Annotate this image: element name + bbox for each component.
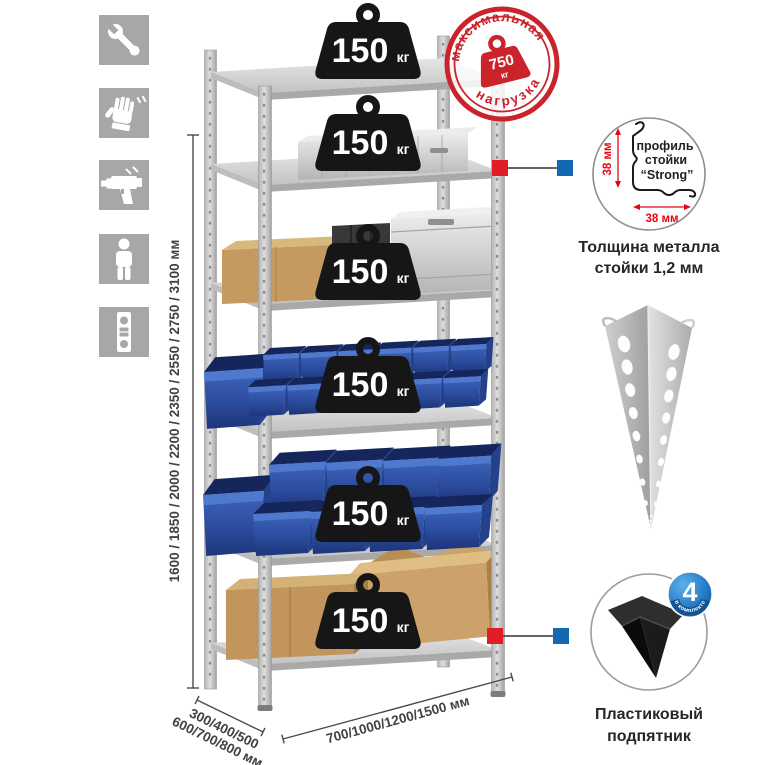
load-value: 150	[332, 32, 389, 70]
load-value: 150	[332, 495, 389, 533]
width-dimension-label: 700/1000/1200/1500 мм	[325, 693, 471, 746]
load-value: 150	[332, 124, 389, 162]
infographic-canvas: 150 кг 150 кг 150 кг 150 кг 150 кг 150 к…	[0, 0, 765, 765]
blue-marker	[557, 160, 573, 176]
load-badge-1: 150 кг	[315, 7, 420, 80]
level-icon	[117, 312, 131, 352]
corner-post-image	[603, 305, 694, 529]
blue-marker	[553, 628, 569, 644]
load-unit: кг	[397, 141, 410, 157]
profile-caption-1: Толщина металла	[578, 239, 719, 256]
shelving-infographic: 150 кг 150 кг 150 кг 150 кг 150 кг 150 к…	[0, 0, 765, 765]
load-value: 150	[332, 253, 389, 291]
profile-callout-connector	[492, 160, 573, 176]
plastic-foot-detail: 4 в комплекте Пластиковый подпятник	[591, 572, 713, 746]
foot-callout-connector	[487, 628, 569, 644]
foot-caption-1: Пластиковый	[595, 706, 703, 723]
depth-dimension: 300/400/500 600/700/800 мм	[170, 696, 272, 765]
profile-dim-vertical: 38 мм	[602, 142, 614, 175]
sidebar-item-gloves	[99, 88, 149, 138]
load-badge-2: 150 кг	[315, 99, 420, 172]
badge-count: 4	[682, 577, 697, 607]
post-profile-detail: профиль стойки “Strong” 38 мм 38 мм Толщ…	[578, 118, 719, 277]
load-value: 150	[332, 366, 389, 404]
included-count-badge: 4 в комплекте	[668, 572, 713, 617]
height-dimension-label: 1600 / 1850 / 2000 / 2200 / 2350 / 2550 …	[167, 240, 182, 583]
max-load-stamp: максимальная нагрузка 750 кг	[435, 0, 568, 131]
load-unit: кг	[397, 49, 410, 65]
load-unit: кг	[397, 619, 410, 635]
sidebar-item-tools	[99, 15, 149, 65]
profile-label-2: стойки	[645, 153, 687, 167]
profile-caption-2: стойки 1,2 мм	[595, 260, 704, 277]
sidebar	[99, 15, 149, 357]
sidebar-item-level	[99, 307, 149, 357]
load-value: 150	[332, 602, 389, 640]
width-dimension: 700/1000/1200/1500 мм	[282, 673, 513, 747]
foot-caption-2: подпятник	[607, 728, 692, 745]
sidebar-item-person	[99, 234, 149, 284]
profile-label-1: профиль	[636, 139, 693, 153]
profile-dim-horizontal: 38 мм	[645, 213, 678, 225]
sidebar-item-drill	[99, 160, 149, 210]
height-dimension: 1600 / 1850 / 2000 / 2200 / 2350 / 2550 …	[167, 135, 199, 688]
red-marker	[492, 160, 508, 176]
load-unit: кг	[397, 270, 410, 286]
load-unit: кг	[397, 512, 410, 528]
red-marker	[487, 628, 503, 644]
profile-label-3: “Strong”	[641, 168, 694, 182]
load-unit: кг	[397, 383, 410, 399]
